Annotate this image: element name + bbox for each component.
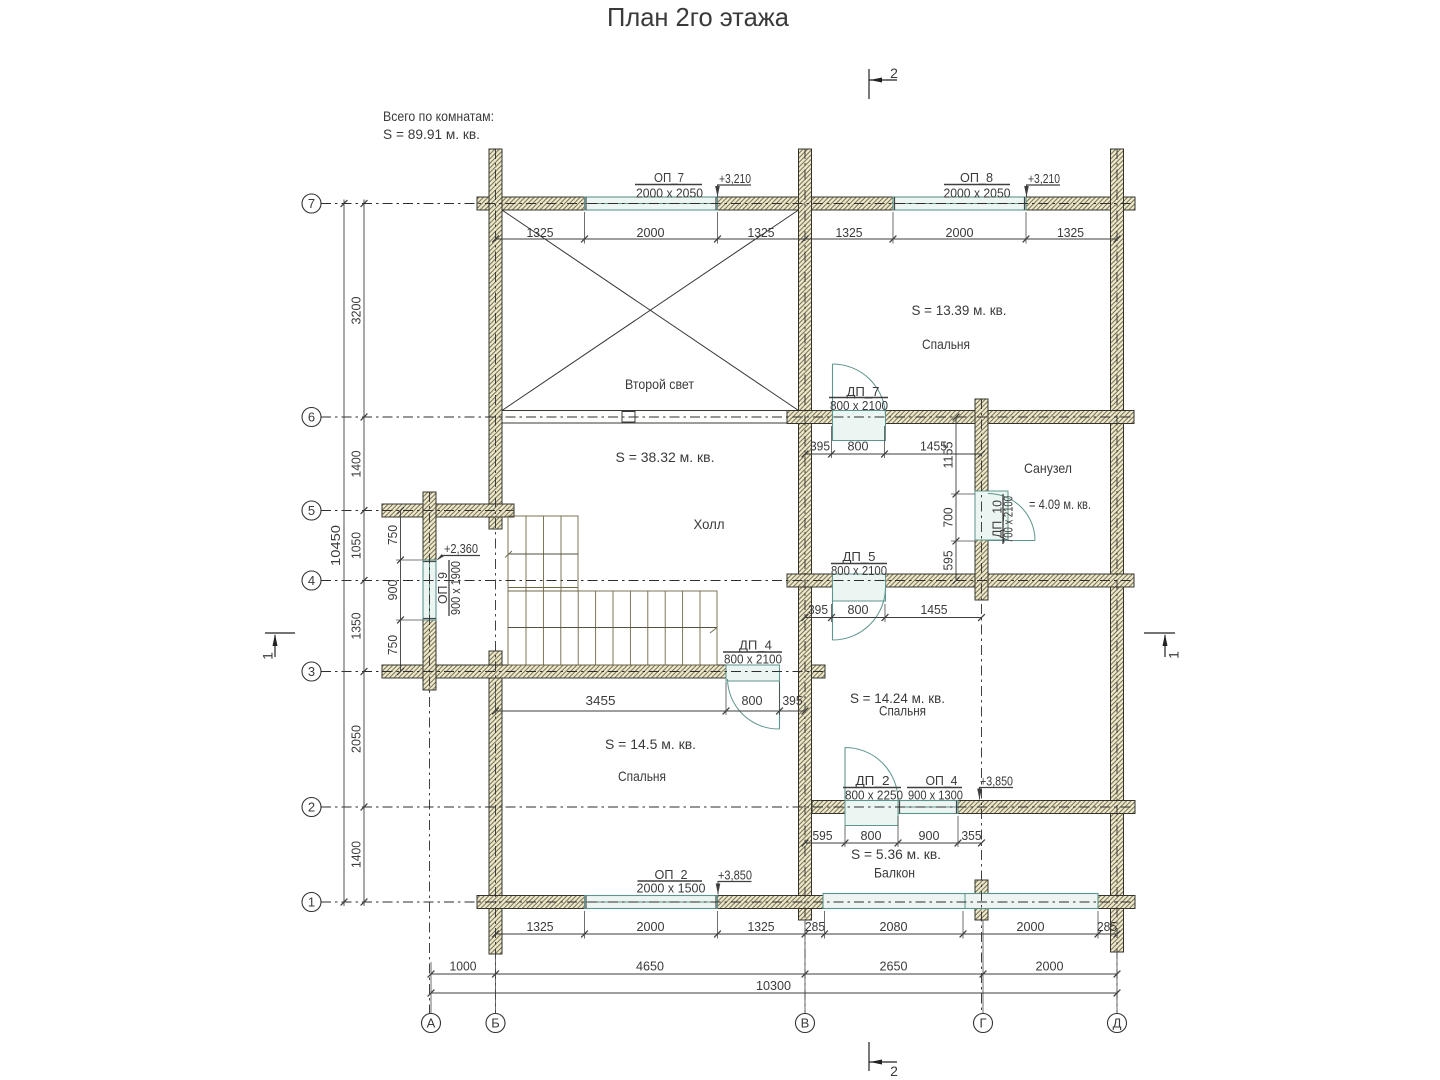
svg-text:Спальня: Спальня [922,336,970,352]
svg-text:800 x 2100: 800 x 2100 [724,652,782,667]
svg-text:S = 13.39 м. кв.: S = 13.39 м. кв. [912,302,1007,318]
svg-text:ДП_4: ДП_4 [739,638,772,653]
svg-text:План 2го этажа: План 2го этажа [607,2,790,32]
svg-text:S = 38.32 м. кв.: S = 38.32 м. кв. [616,449,715,465]
svg-text:355: 355 [962,828,982,843]
svg-text:3: 3 [308,664,315,679]
svg-text:595: 595 [813,828,833,843]
svg-text:2000 x 2050: 2000 x 2050 [636,186,703,201]
svg-text:1: 1 [260,652,276,660]
svg-text:700 x 2100: 700 x 2100 [1001,496,1016,543]
svg-text:900 x 1900: 900 x 1900 [448,561,463,615]
svg-text:1400: 1400 [349,841,364,868]
svg-text:Всего по комнатам:: Всего по комнатам: [383,108,494,124]
svg-text:800: 800 [848,439,869,454]
svg-text:2050: 2050 [349,725,364,753]
svg-text:2000: 2000 [1036,959,1064,974]
svg-text:395: 395 [808,602,828,617]
svg-text:ДП_2: ДП_2 [856,773,890,788]
svg-text:10450: 10450 [328,525,343,566]
svg-text:2: 2 [890,65,898,81]
svg-text:1325: 1325 [1057,225,1084,240]
svg-text:7: 7 [308,196,315,211]
svg-text:2: 2 [890,1063,898,1079]
svg-text:В: В [801,1016,810,1031]
svg-text:6: 6 [308,410,315,425]
svg-text:900: 900 [919,828,940,843]
svg-text:2000 x 2050: 2000 x 2050 [944,186,1011,201]
svg-text:750: 750 [385,635,400,655]
svg-text:+3,850: +3,850 [718,868,752,883]
svg-text:1000: 1000 [450,959,477,974]
svg-text:750: 750 [385,525,400,545]
svg-text:1: 1 [308,895,315,910]
svg-text:4: 4 [308,573,315,588]
svg-text:Б: Б [491,1016,500,1031]
svg-text:2000: 2000 [946,225,974,240]
svg-text:395: 395 [783,693,803,708]
svg-text:S = 89.91 м. кв.: S = 89.91 м. кв. [383,126,480,142]
svg-text:2000: 2000 [637,919,665,934]
svg-text:800 x 2250: 800 x 2250 [845,788,903,803]
svg-text:1325: 1325 [836,225,863,240]
svg-text:Спальня: Спальня [618,768,666,784]
svg-text:Д: Д [1113,1016,1122,1031]
svg-text:3200: 3200 [349,297,364,325]
svg-text:1325: 1325 [527,225,554,240]
svg-text:800: 800 [742,693,763,708]
svg-text:ОП_4: ОП_4 [926,773,958,788]
svg-text:Санузел: Санузел [1024,460,1072,476]
svg-text:+3,850: +3,850 [980,774,1013,789]
svg-text:900 x 1300: 900 x 1300 [908,788,963,803]
svg-text:285: 285 [1097,919,1117,934]
svg-text:= 4.09 м. кв.: = 4.09 м. кв. [1029,496,1091,512]
svg-text:700: 700 [941,508,956,528]
svg-text:800 x 2100: 800 x 2100 [831,563,887,578]
svg-text:1: 1 [1166,651,1182,659]
svg-text:2650: 2650 [880,959,908,974]
svg-text:S = 14.5 м. кв.: S = 14.5 м. кв. [605,736,696,752]
svg-text:S = 5.36 м. кв.: S = 5.36 м. кв. [851,846,941,862]
svg-text:800 x 2100: 800 x 2100 [830,398,888,413]
svg-text:285: 285 [805,919,825,934]
svg-text:Второй свет: Второй свет [625,376,695,392]
svg-text:800: 800 [848,602,869,617]
svg-text:1325: 1325 [748,225,775,240]
svg-text:Г: Г [979,1016,986,1031]
svg-text:4650: 4650 [636,959,664,974]
svg-text:ОП_8: ОП_8 [960,170,993,185]
svg-text:Холл: Холл [694,516,725,532]
svg-text:1400: 1400 [349,451,364,478]
svg-text:3455: 3455 [586,693,616,708]
svg-text:Балкон: Балкон [874,865,915,881]
svg-text:900: 900 [385,580,400,601]
svg-text:800: 800 [861,828,882,843]
svg-text:1350: 1350 [349,613,364,640]
svg-text:1325: 1325 [527,919,554,934]
svg-text:2: 2 [308,800,315,815]
svg-text:5: 5 [308,503,315,518]
svg-text:2000: 2000 [1017,919,1045,934]
svg-text:1455: 1455 [920,439,947,454]
svg-text:1455: 1455 [921,602,948,617]
svg-text:Спальня: Спальня [879,703,926,719]
svg-text:10300: 10300 [756,978,791,993]
svg-text:А: А [427,1016,436,1031]
svg-text:+2,360: +2,360 [444,541,478,556]
svg-text:1050: 1050 [349,532,364,559]
svg-text:1325: 1325 [748,919,775,934]
svg-text:ДП_5: ДП_5 [843,549,876,564]
svg-text:595: 595 [941,551,956,571]
svg-text:2080: 2080 [880,919,908,934]
svg-text:ОП_7: ОП_7 [654,170,684,185]
svg-text:2000 x 1500: 2000 x 1500 [637,881,706,896]
svg-text:+3,210: +3,210 [1028,171,1060,186]
svg-text:395: 395 [810,439,830,454]
svg-text:2000: 2000 [637,225,665,240]
svg-text:+3,210: +3,210 [719,171,751,186]
